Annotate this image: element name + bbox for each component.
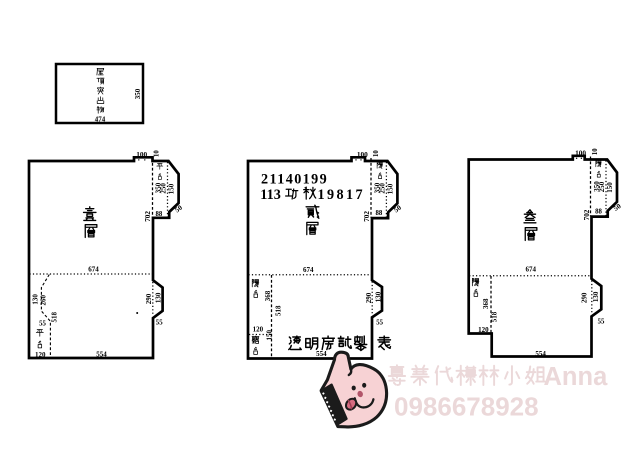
svg-text:674: 674 (303, 266, 314, 274)
svg-text:290: 290 (365, 292, 373, 303)
svg-text:113: 113 (260, 187, 281, 203)
svg-text:150: 150 (266, 330, 274, 341)
svg-text:518: 518 (50, 311, 58, 322)
svg-text:702: 702 (583, 209, 591, 220)
svg-text:260: 260 (40, 295, 48, 306)
svg-text:368: 368 (264, 290, 272, 301)
svg-text:Anna: Anna (544, 363, 609, 391)
svg-text:290: 290 (145, 293, 153, 304)
svg-text:674: 674 (88, 266, 99, 274)
svg-text:120: 120 (35, 351, 46, 359)
svg-text:150: 150 (606, 182, 614, 193)
svg-text:100: 100 (575, 148, 586, 157)
svg-text:130: 130 (155, 292, 163, 303)
svg-text:702: 702 (363, 211, 371, 222)
svg-text:55: 55 (376, 320, 383, 327)
svg-text:10: 10 (373, 150, 380, 157)
svg-text:88: 88 (595, 209, 602, 216)
svg-text:290: 290 (581, 292, 589, 303)
svg-text:55: 55 (39, 320, 46, 327)
svg-text:554: 554 (535, 350, 546, 358)
svg-text:518: 518 (491, 311, 499, 322)
svg-text:702: 702 (144, 211, 152, 222)
svg-text:120: 120 (253, 325, 264, 333)
svg-text:554: 554 (96, 351, 107, 359)
svg-text:100: 100 (357, 150, 368, 159)
svg-text:350: 350 (134, 88, 142, 99)
svg-text:0986678928: 0986678928 (394, 391, 539, 421)
svg-text:21140199: 21140199 (261, 172, 328, 188)
svg-text:88: 88 (156, 211, 163, 218)
svg-text:150: 150 (386, 183, 394, 194)
svg-text:130: 130 (374, 291, 382, 302)
svg-text:474: 474 (95, 116, 106, 124)
svg-text:150: 150 (167, 183, 175, 194)
svg-text:674: 674 (526, 266, 537, 274)
svg-text:130: 130 (592, 291, 600, 302)
svg-text:55: 55 (598, 318, 605, 325)
svg-text:130: 130 (32, 294, 40, 305)
svg-text:518: 518 (275, 305, 283, 316)
svg-text:88: 88 (376, 210, 383, 217)
svg-text:10: 10 (154, 150, 161, 157)
svg-text:554: 554 (316, 350, 327, 358)
svg-text:19817: 19817 (318, 187, 365, 203)
svg-text:55: 55 (156, 320, 163, 327)
svg-text:100: 100 (136, 150, 147, 159)
svg-text:10: 10 (592, 148, 599, 155)
svg-text:120: 120 (478, 326, 489, 334)
svg-text:368: 368 (482, 298, 490, 309)
